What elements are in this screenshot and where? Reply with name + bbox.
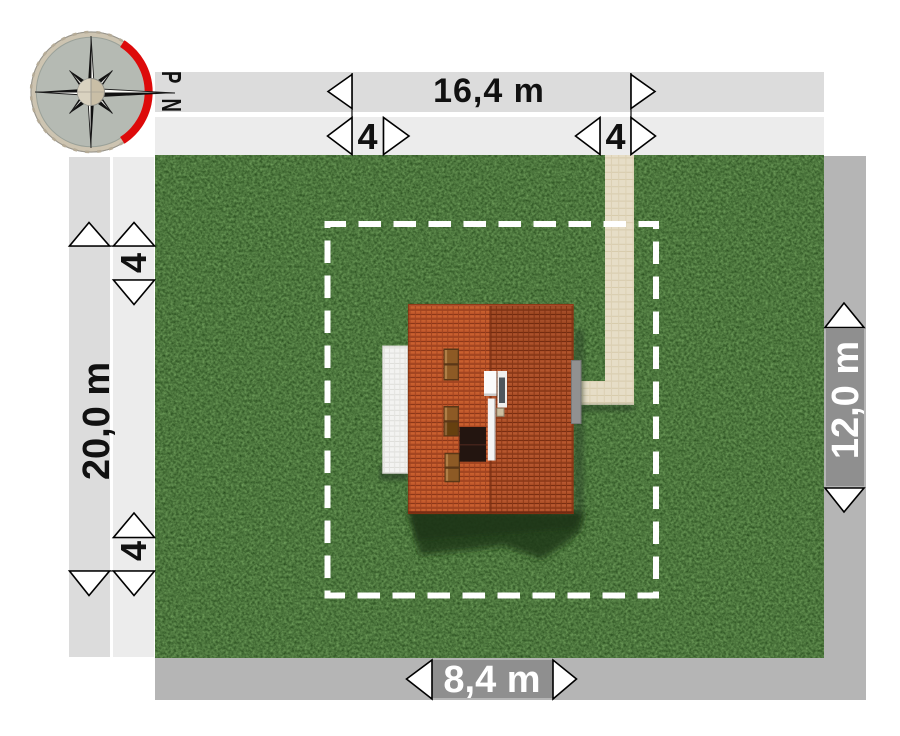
svg-text:4: 4	[113, 541, 154, 561]
svg-text:4: 4	[357, 116, 377, 157]
svg-text:N: N	[155, 99, 186, 112]
svg-text:12,0 m: 12,0 m	[825, 341, 867, 459]
svg-text:8,4 m: 8,4 m	[443, 659, 540, 701]
svg-text:20,0 m: 20,0 m	[76, 362, 118, 480]
svg-text:4: 4	[113, 253, 154, 273]
svg-text:4: 4	[605, 116, 625, 157]
svg-text:16,4 m: 16,4 m	[433, 72, 545, 110]
svg-text:P: P	[155, 71, 186, 83]
